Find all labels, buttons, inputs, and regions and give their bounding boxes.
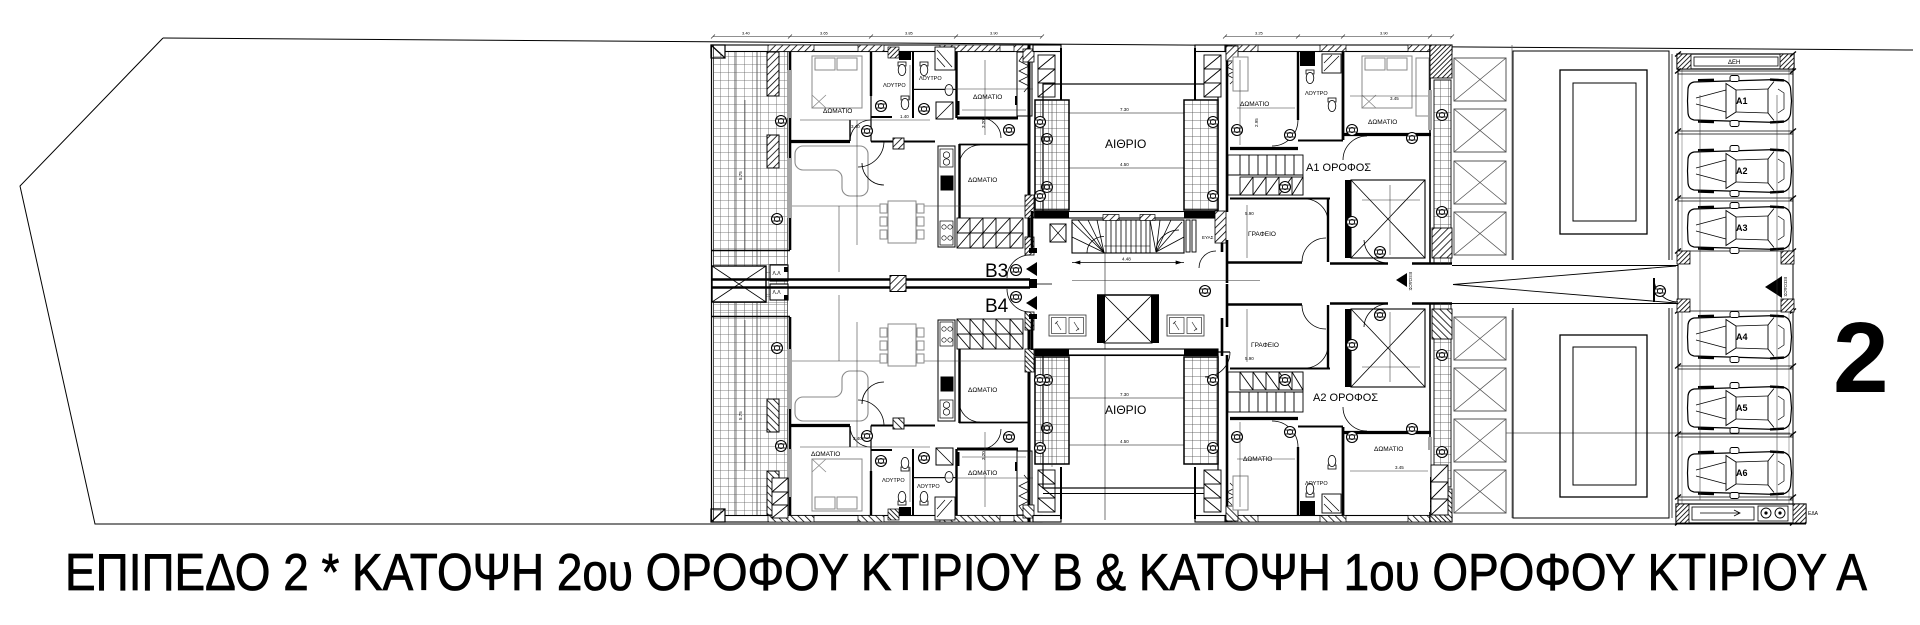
svg-text:ΑΙΘΡΙΟ: ΑΙΘΡΙΟ bbox=[1105, 403, 1146, 417]
svg-text:ΛΟΥΤΡΟ: ΛΟΥΤΡΟ bbox=[919, 76, 942, 82]
svg-text:3.40: 3.40 bbox=[853, 436, 862, 441]
svg-text:ΔΩΜΑΤΙΟ: ΔΩΜΑΤΙΟ bbox=[1243, 456, 1272, 463]
svg-text:ΔΕΗ: ΔΕΗ bbox=[1728, 60, 1740, 66]
svg-text:3.40: 3.40 bbox=[742, 31, 751, 36]
svg-text:3.40: 3.40 bbox=[851, 124, 860, 129]
svg-text:4.50: 4.50 bbox=[1120, 162, 1129, 167]
svg-text:3.90: 3.90 bbox=[1380, 31, 1389, 36]
svg-text:ΕΔΑ: ΕΔΑ bbox=[1808, 511, 1819, 517]
svg-text:ΑΙΘΡΙΟ: ΑΙΘΡΙΟ bbox=[1105, 137, 1146, 151]
svg-text:ΕΙΣΟΔΟΣ: ΕΙΣΟΔΟΣ bbox=[1783, 277, 1788, 297]
svg-text:Β3: Β3 bbox=[985, 261, 1008, 282]
svg-text:Α1 ΟΡΟΦΟΣ: Α1 ΟΡΟΦΟΣ bbox=[1306, 162, 1371, 174]
svg-text:ΕΠΙΠΕΔΟ 2 * ΚΑΤΟΨΗ 2ου ΟΡΟΦΟΥ: ΕΠΙΠΕΔΟ 2 * ΚΑΤΟΨΗ 2ου ΟΡΟΦΟΥ ΚΤΙΡΙΟΥ Β … bbox=[65, 544, 1867, 602]
svg-text:3.45: 3.45 bbox=[1390, 96, 1399, 101]
svg-text:A5: A5 bbox=[1736, 403, 1748, 413]
svg-text:ΔΩΜΑΤΙΟ: ΔΩΜΑΤΙΟ bbox=[968, 470, 997, 477]
svg-text:A2: A2 bbox=[1736, 166, 1748, 176]
svg-text:ΓΡΑΦΕΙΟ: ΓΡΑΦΕΙΟ bbox=[1248, 231, 1276, 238]
svg-text:5.90: 5.90 bbox=[1245, 211, 1254, 216]
svg-text:7.30: 7.30 bbox=[1120, 107, 1129, 112]
svg-text:3.85: 3.85 bbox=[905, 31, 914, 36]
svg-text:ΔΩΜΑΤΙΟ: ΔΩΜΑΤΙΟ bbox=[811, 451, 840, 458]
svg-text:A4: A4 bbox=[1736, 332, 1748, 342]
svg-text:ΛΟΥΤΡΟ: ΛΟΥΤΡΟ bbox=[883, 83, 906, 89]
svg-text:ΕΞΟΔΟΣ: ΕΞΟΔΟΣ bbox=[1408, 272, 1413, 291]
svg-text:Β4: Β4 bbox=[985, 296, 1009, 317]
svg-text:ΔΩΜΑΤΙΟ: ΔΩΜΑΤΙΟ bbox=[968, 177, 997, 184]
svg-text:4.50: 4.50 bbox=[1120, 439, 1129, 444]
svg-text:4.48: 4.48 bbox=[1122, 257, 1131, 262]
svg-text:1.40: 1.40 bbox=[900, 114, 909, 119]
svg-text:A1: A1 bbox=[1736, 96, 1748, 106]
svg-text:5.75: 5.75 bbox=[738, 411, 743, 420]
svg-text:Λ.Λ: Λ.Λ bbox=[773, 290, 782, 296]
svg-text:A6: A6 bbox=[1736, 468, 1748, 478]
svg-text:ΔΩΜΑΤΙΟ: ΔΩΜΑΤΙΟ bbox=[823, 108, 852, 115]
svg-text:ΔΩΜΑΤΙΟ: ΔΩΜΑΤΙΟ bbox=[1240, 101, 1269, 108]
svg-text:ΕΥΑΣ: ΕΥΑΣ bbox=[1202, 235, 1214, 240]
svg-text:2: 2 bbox=[1833, 302, 1889, 414]
svg-text:3.45: 3.45 bbox=[1395, 465, 1404, 470]
svg-text:A3: A3 bbox=[1736, 223, 1748, 233]
svg-text:3.25: 3.25 bbox=[1255, 31, 1264, 36]
svg-text:ΔΩΜΑΤΙΟ: ΔΩΜΑΤΙΟ bbox=[1368, 119, 1397, 126]
svg-text:3.90: 3.90 bbox=[990, 31, 999, 36]
svg-text:Λ.Λ: Λ.Λ bbox=[773, 271, 782, 277]
svg-text:ΓΡΑΦΕΙΟ: ΓΡΑΦΕΙΟ bbox=[1251, 342, 1279, 349]
svg-text:ΛΟΥΤΡΟ: ΛΟΥΤΡΟ bbox=[1305, 481, 1328, 487]
svg-text:3.20: 3.20 bbox=[981, 119, 986, 128]
svg-text:5.75: 5.75 bbox=[738, 171, 743, 180]
svg-text:Α2 ΟΡΟΦΟΣ: Α2 ΟΡΟΦΟΣ bbox=[1313, 392, 1378, 404]
svg-text:2.95: 2.95 bbox=[1254, 118, 1259, 127]
svg-text:3.65: 3.65 bbox=[820, 31, 829, 36]
svg-text:5.90: 5.90 bbox=[1245, 356, 1254, 361]
svg-text:3.20: 3.20 bbox=[981, 451, 986, 460]
svg-text:ΛΟΥΤΡΟ: ΛΟΥΤΡΟ bbox=[917, 484, 940, 490]
svg-text:ΛΟΥΤΡΟ: ΛΟΥΤΡΟ bbox=[1305, 91, 1328, 97]
svg-text:ΔΩΜΑΤΙΟ: ΔΩΜΑΤΙΟ bbox=[1374, 446, 1403, 453]
svg-text:7.30: 7.30 bbox=[1120, 392, 1129, 397]
svg-text:ΔΩΜΑΤΙΟ: ΔΩΜΑΤΙΟ bbox=[973, 94, 1002, 101]
svg-text:ΛΟΥΤΡΟ: ΛΟΥΤΡΟ bbox=[882, 478, 905, 484]
svg-text:ΔΩΜΑΤΙΟ: ΔΩΜΑΤΙΟ bbox=[968, 387, 997, 394]
